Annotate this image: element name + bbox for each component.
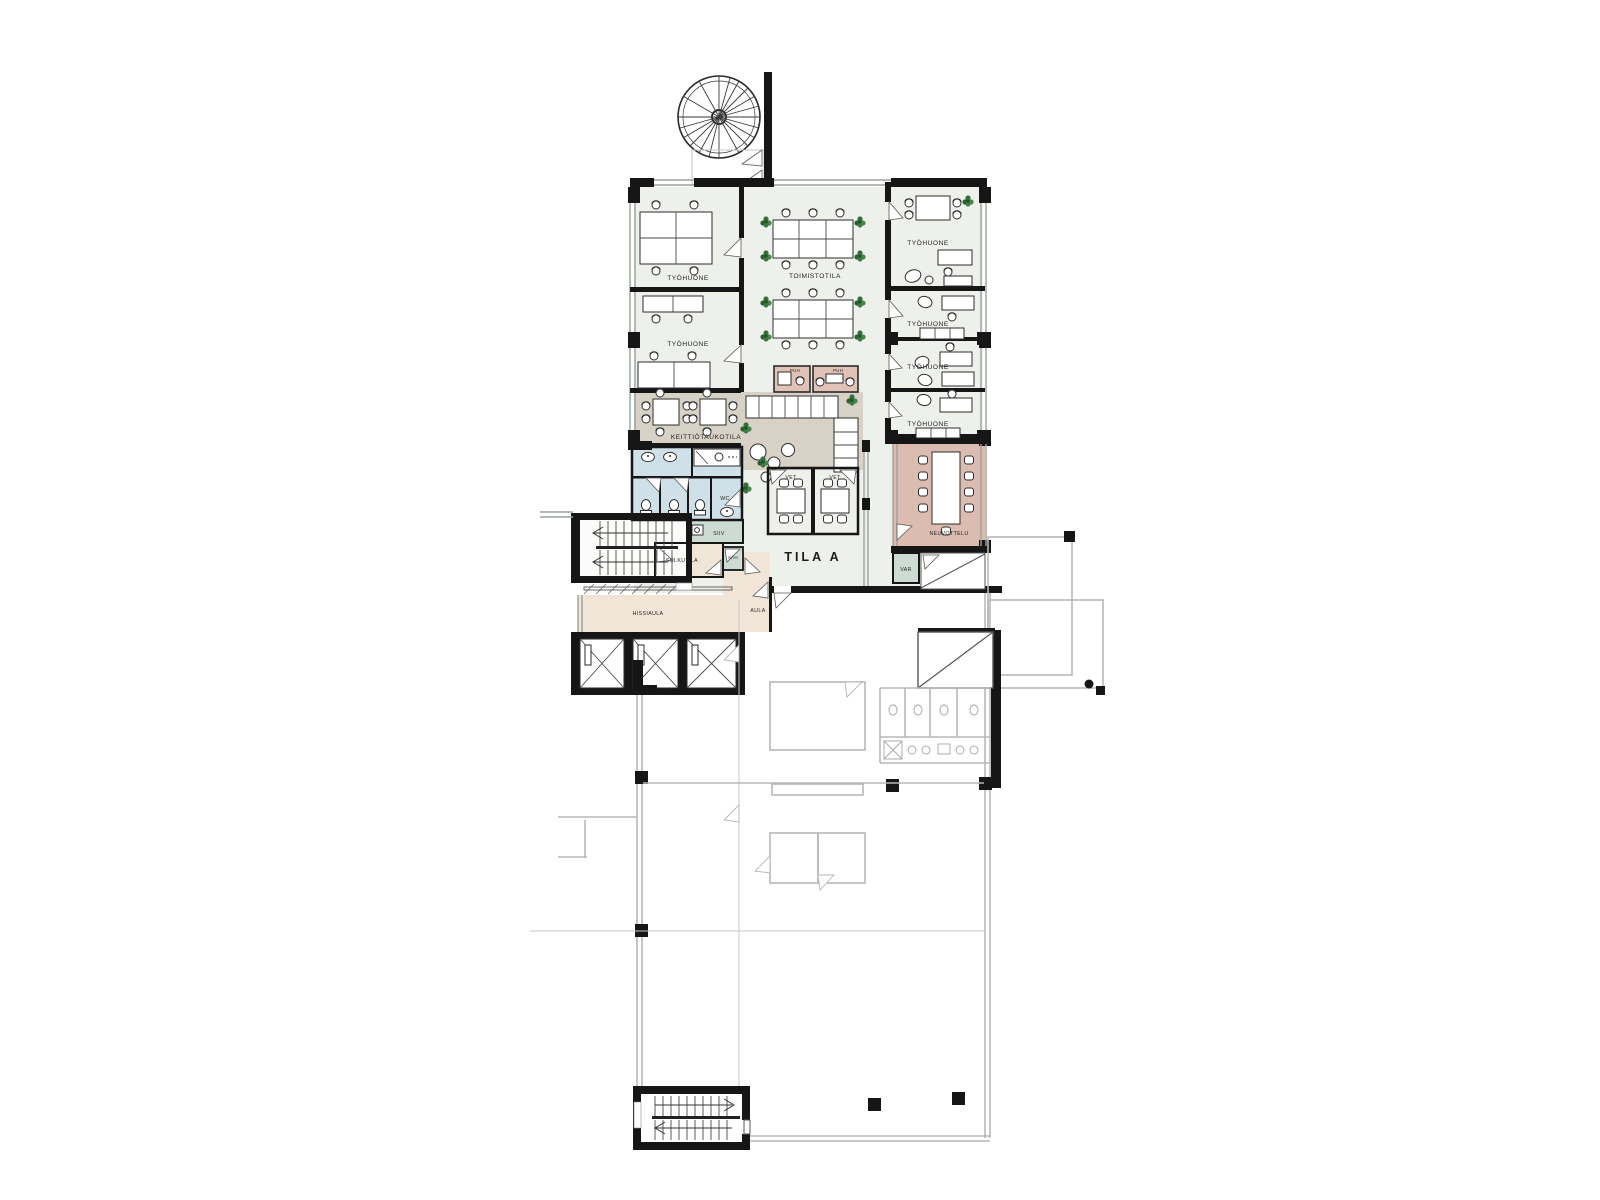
label-tila-a: TILA A xyxy=(784,550,841,564)
label-puh-2: PUH xyxy=(833,368,843,373)
phone-booths: PUH PUH xyxy=(774,366,858,392)
lower-staircase xyxy=(633,1086,750,1150)
label-puh-1: PUH xyxy=(790,368,800,373)
label-toimistotila: TOIMISTOTILA xyxy=(789,273,841,280)
label-neuvottelu: NEUVOTTELU xyxy=(929,531,968,537)
label-hissiaula: HISSIAULA xyxy=(633,611,664,617)
label-tyohuone-left-1: TYÖHUONE xyxy=(667,274,709,282)
label-wc: WC xyxy=(720,496,729,502)
elevator-bank xyxy=(571,632,745,695)
spiral-staircase xyxy=(678,72,772,187)
label-siiv: SIIV xyxy=(713,531,725,537)
label-vet-1: VET xyxy=(785,475,797,481)
label-var: VAR xyxy=(900,567,912,573)
label-tyohuone-right-4: TYÖHUONE xyxy=(907,420,949,428)
floor-plan-canvas: TYÖHUONE TYÖHUONE KEITTIÖTAUKOTILA TOIMI… xyxy=(0,0,1600,1200)
label-tyohuone-right-3: TYÖHUONE xyxy=(907,363,949,371)
label-tyohuone-right-2: TYÖHUONE xyxy=(907,320,949,328)
label-vet-2: VET xyxy=(829,475,841,481)
floor-plan-drawing: TYÖHUONE TYÖHUONE KEITTIÖTAUKOTILA TOIMI… xyxy=(0,0,1600,1200)
label-tyohuone-right-1: TYÖHUONE xyxy=(907,239,949,247)
ramp xyxy=(921,553,985,589)
label-sulkutila: SULKUTILA xyxy=(666,558,698,564)
terrace xyxy=(988,531,1105,695)
label-aula: AULA xyxy=(750,608,765,614)
label-keittiotaukotila: KEITTIÖTAUKOTILA xyxy=(671,433,741,441)
label-tyohuone-left-2: TYÖHUONE xyxy=(667,340,709,348)
label-sah: SÄH xyxy=(728,555,738,560)
